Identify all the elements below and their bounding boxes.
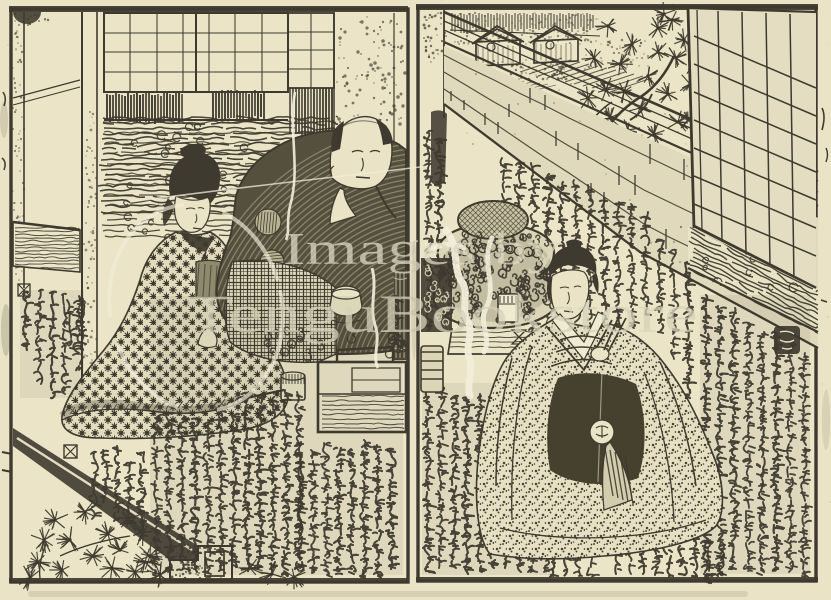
svg-text:TenguBookstore: TenguBookstore bbox=[186, 284, 698, 344]
svg-text:Images by: Images by bbox=[283, 223, 561, 274]
